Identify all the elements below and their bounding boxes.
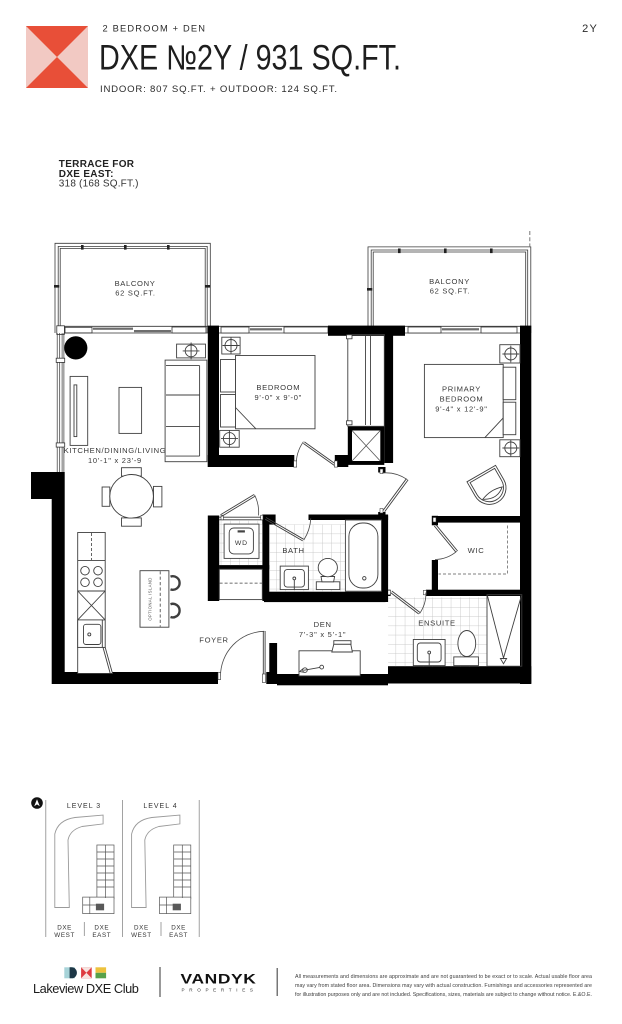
svg-text:Lakeview DXE Club: Lakeview DXE Club [33, 981, 139, 996]
svg-text:BATH: BATH [282, 546, 304, 555]
svg-text:DXE: DXE [134, 925, 149, 932]
svg-text:9'-0" x 9'-0": 9'-0" x 9'-0" [255, 393, 303, 402]
svg-text:10'-1" x 23'-9: 10'-1" x 23'-9 [88, 456, 142, 465]
svg-text:BALCONY: BALCONY [115, 279, 156, 288]
svg-text:may vary from stated floor are: may vary from stated floor area. Dimensi… [295, 983, 592, 989]
svg-text:318 (168 SQ.FT.): 318 (168 SQ.FT.) [59, 179, 139, 190]
svg-text:BEDROOM: BEDROOM [440, 395, 484, 404]
svg-text:KITCHEN/DINING/LIVING: KITCHEN/DINING/LIVING [64, 446, 167, 455]
svg-text:2 BEDROOM + DEN: 2 BEDROOM + DEN [103, 24, 207, 34]
svg-text:FOYER: FOYER [199, 636, 228, 645]
svg-text:WEST: WEST [54, 932, 75, 939]
svg-text:LEVEL 4: LEVEL 4 [143, 803, 177, 810]
svg-text:DXE №2Y / 931 SQ.FT.: DXE №2Y / 931 SQ.FT. [99, 39, 401, 78]
svg-text:EAST: EAST [92, 932, 111, 939]
svg-text:INDOOR: 807 SQ.FT. + OUTDOOR:: INDOOR: 807 SQ.FT. + OUTDOOR: 124 SQ.FT. [100, 84, 338, 95]
svg-text:WD: WD [235, 540, 248, 547]
svg-text:7'-3" x 5'-1": 7'-3" x 5'-1" [299, 630, 347, 639]
svg-text:ENSUITE: ENSUITE [418, 619, 455, 628]
svg-text:DXE: DXE [94, 925, 109, 932]
svg-text:DXE: DXE [171, 925, 186, 932]
svg-text:WIC: WIC [468, 546, 485, 555]
svg-text:EAST: EAST [169, 932, 188, 939]
svg-text:9'-4" x 12'-9": 9'-4" x 12'-9" [435, 404, 487, 413]
svg-text:2Y: 2Y [582, 23, 598, 35]
svg-text:62 SQ.FT.: 62 SQ.FT. [430, 287, 471, 296]
svg-text:LEVEL 3: LEVEL 3 [67, 803, 101, 810]
svg-text:62 SQ.FT.: 62 SQ.FT. [115, 289, 156, 298]
svg-text:BALCONY: BALCONY [429, 277, 470, 286]
svg-text:OPTIONAL ISLAND: OPTIONAL ISLAND [148, 577, 153, 621]
svg-text:DEN: DEN [314, 620, 332, 629]
svg-text:WEST: WEST [131, 932, 152, 939]
svg-text:for illustration purposes only: for illustration purposes only and are n… [295, 992, 592, 998]
svg-text:PRIMARY: PRIMARY [442, 385, 481, 394]
svg-text:VANDYK: VANDYK [181, 970, 257, 986]
svg-text:BEDROOM: BEDROOM [256, 383, 300, 392]
svg-text:DXE: DXE [57, 925, 72, 932]
svg-text:PROPERTIES: PROPERTIES [182, 988, 256, 993]
svg-text:All measurements and dimension: All measurements and dimensions are appr… [295, 974, 592, 980]
